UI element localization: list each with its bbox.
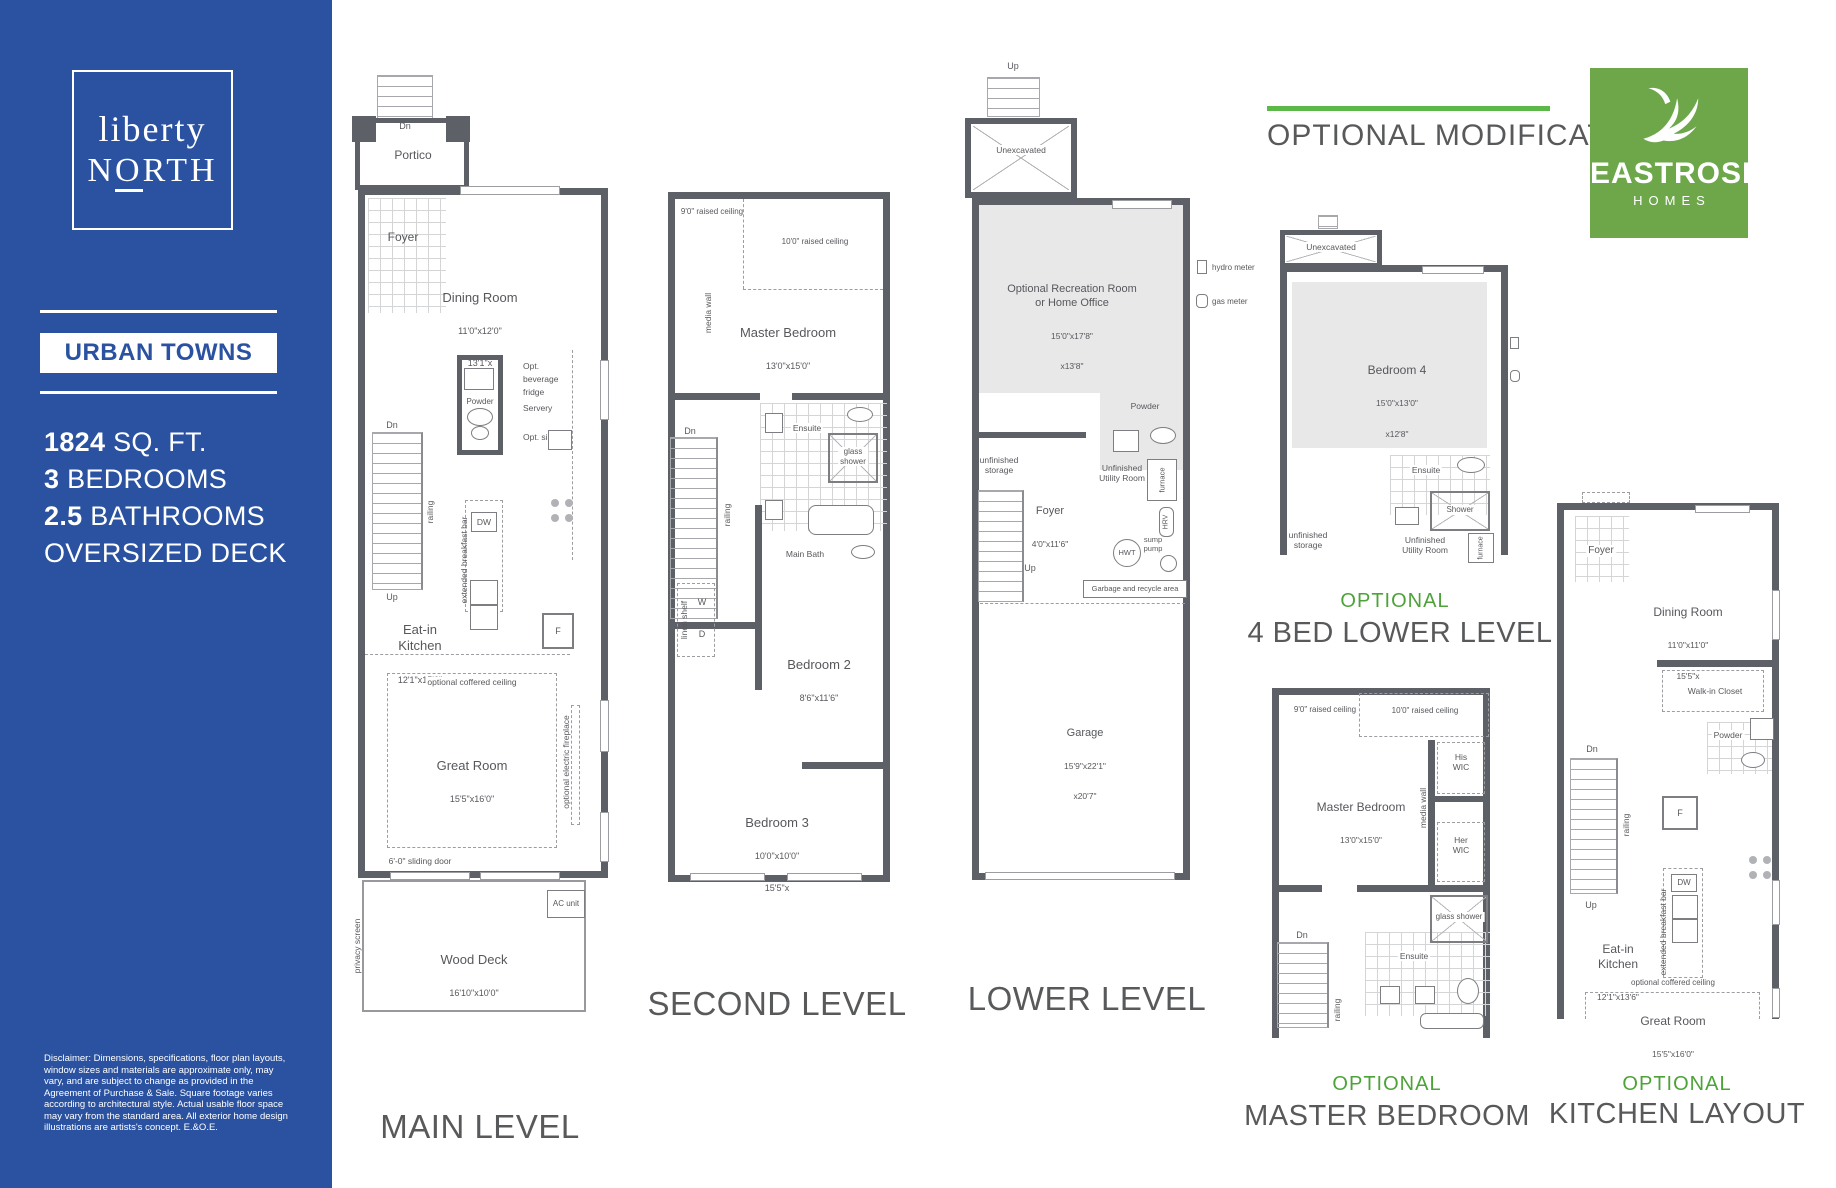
coffered-ceiling-label: optional coffered ceiling — [1629, 978, 1717, 988]
toilet — [1457, 978, 1479, 1004]
foyer-label: Foyer 4'0"x11'6" — [1032, 485, 1069, 569]
room-divider-dashed — [365, 654, 570, 655]
wood-deck-label: Wood Deck 16'10"x10'0" — [441, 932, 508, 1020]
fridge: F — [542, 613, 574, 649]
ceiling-dashed-line — [743, 289, 883, 290]
raised-ceiling-9-label: 9'0" raised ceiling — [681, 207, 743, 217]
room-name: Eat-in Kitchen — [1597, 942, 1639, 972]
linen-shelf-label: linen shelf — [680, 601, 689, 639]
unfinished-storage-label: unfinished storage — [980, 455, 1019, 475]
second-level-plan: 9'0" raised ceiling 10'0" raised ceiling… — [665, 185, 910, 1045]
island-sink — [470, 605, 498, 630]
coffered-ceiling-label: optional coffered ceiling — [425, 677, 518, 687]
spec-value: 3 — [44, 464, 59, 494]
toilet — [851, 545, 875, 559]
toilet — [1741, 752, 1765, 768]
main-bath-label: Main Bath — [784, 549, 826, 559]
room-name: Wood Deck — [441, 952, 508, 968]
window — [1772, 590, 1780, 640]
logo-word-liberty: liberty — [74, 108, 231, 150]
island-sink — [1672, 895, 1698, 919]
room-dim: 15'0"x17'8" — [1007, 331, 1137, 342]
garage-door — [985, 872, 1175, 880]
great-room-label: Great Room 15'5"x16'0" — [437, 738, 508, 826]
washer-label: W — [698, 597, 707, 608]
window — [480, 872, 560, 880]
window — [787, 873, 862, 881]
extended-breakfast-bar-label: extended breakfast bar — [460, 517, 469, 604]
rec-room-label: Optional Recreation Room or Home Office … — [1007, 263, 1137, 392]
up-label: Up — [1585, 900, 1597, 911]
ensuite-label: Ensuite — [1398, 951, 1430, 961]
wall — [1357, 885, 1490, 892]
sink — [1750, 718, 1774, 740]
room-dim: x12'8" — [1368, 429, 1427, 440]
media-wall — [1428, 740, 1435, 885]
dryer-label: D — [699, 629, 706, 640]
room-name: Bedroom 3 — [745, 815, 809, 831]
ceiling-dashed-line — [743, 199, 744, 289]
stairs — [1570, 758, 1618, 894]
toilet-tank — [471, 426, 489, 440]
window — [1772, 880, 1780, 925]
green-accent-line — [1267, 106, 1550, 111]
dishwasher: DW — [1671, 874, 1697, 892]
media-wall-label: media wall — [704, 293, 713, 333]
lower-level-plan: Up Unexcavated Optional Recreation Room … — [960, 55, 1270, 1030]
garbage-area: Garbage and recycle area — [1083, 580, 1187, 598]
logo-letter: N — [87, 152, 115, 189]
sidebar: liberty NORTH URBAN TOWNS 1824 SQ. FT. 3… — [0, 0, 332, 1188]
optional-kitchen-layout-plan: Foyer Dining Room 11'0"x11'0" 15'5"x Wal… — [1545, 490, 1810, 1150]
spec-deck: OVERSIZED DECK — [44, 535, 287, 572]
toilet — [847, 407, 873, 422]
window — [600, 812, 609, 862]
second-level-title: SECOND LEVEL — [647, 985, 906, 1023]
railing-label: railing — [1333, 999, 1342, 1022]
ac-unit: AC unit — [547, 890, 585, 918]
utility-room-label: Unfinished Utility Room — [1099, 463, 1145, 483]
main-level-plan: Dn Portico Foyer Dining Room 11'0"x12'0"… — [340, 60, 632, 1150]
spec-label: BATHROOMS — [82, 501, 265, 531]
room-name: Optional Recreation Room or Home Office — [1007, 283, 1137, 311]
room-dim: x13'8" — [1007, 361, 1137, 372]
window — [1772, 988, 1780, 1018]
bedroom-2-label: Bedroom 2 8'6"x11'6" — [787, 637, 851, 725]
master-bedroom-label: Master Bedroom 13'0"x15'0" — [1317, 780, 1406, 866]
powder-label: Powder — [1712, 730, 1745, 740]
toilet — [1150, 427, 1176, 444]
brochure-page: liberty NORTH URBAN TOWNS 1824 SQ. FT. 3… — [0, 0, 1836, 1188]
entry-steps — [1318, 215, 1338, 229]
hydro-meter-icon — [1197, 260, 1207, 274]
stairs — [372, 432, 423, 590]
bedroom-3-label: Bedroom 3 10'0"x10'0" 15'5"x — [745, 795, 809, 914]
bathtub — [1420, 1013, 1484, 1029]
master-bedroom-label: Master Bedroom 13'0"x15'0" — [740, 305, 836, 393]
sliding-door-label: 6'-0" sliding door — [389, 856, 452, 866]
room-dim: 8'6"x11'6" — [787, 693, 851, 704]
optional-master-bedroom-plan: 9'0" raised ceiling 10'0" raised ceiling… — [1265, 680, 1515, 1145]
window — [1695, 505, 1750, 513]
wall — [792, 393, 890, 400]
sink — [1415, 986, 1435, 1004]
optional-4-bed-lower-level-plan: Unexcavated Bedroom 4 15'0"x13'0" x12'8"… — [1275, 185, 1545, 655]
powder-label: Powder — [1131, 401, 1160, 411]
portico-label: Portico — [394, 148, 431, 162]
room-dim: 15'9"x22'1" — [1064, 761, 1106, 772]
eastrose-bird-icon — [1618, 78, 1719, 154]
up-label: Up — [1024, 563, 1036, 574]
eastrose-homes-logo: EASTROSE HOMES — [1590, 68, 1748, 238]
room-name: Garage — [1064, 727, 1106, 741]
great-room-label: Great Room 15'5"x16'0" — [1640, 994, 1705, 1080]
unexcavated-label: Unexcavated — [994, 145, 1048, 155]
room-dim: 11'0"x12'0" — [442, 326, 517, 337]
window — [600, 700, 609, 752]
room-name: Dining Room — [442, 290, 517, 306]
railing-label: railing — [723, 504, 732, 527]
foyer-label: Foyer — [1586, 545, 1616, 557]
sink — [765, 413, 783, 433]
fireplace-outline — [571, 705, 580, 825]
portico-pillar — [446, 116, 470, 142]
divider-line — [40, 310, 277, 313]
room-dim: 16'10"x10'0" — [441, 988, 508, 999]
unexcavated-x — [973, 126, 1069, 190]
window — [690, 873, 765, 881]
servery-label: Servery — [523, 403, 552, 413]
bathtub — [808, 505, 874, 535]
sink — [765, 500, 783, 520]
lower-level-title: LOWER LEVEL — [968, 980, 1206, 1018]
room-dim: 13'0"x15'0" — [1317, 835, 1406, 846]
raised-ceiling-10-label: 10'0" raised ceiling — [1392, 706, 1459, 716]
toilet — [1457, 457, 1485, 473]
spec-label: OVERSIZED DECK — [44, 538, 287, 568]
hwt-tank: HWT — [1113, 539, 1141, 567]
ensuite-label: Ensuite — [1410, 465, 1442, 475]
optional-plan-title: 4 BED LOWER LEVEL — [1247, 617, 1552, 650]
dn-label: Dn — [1586, 744, 1598, 755]
sink — [1113, 430, 1139, 452]
wall — [1430, 796, 1490, 802]
room-name: Master Bedroom — [1317, 800, 1406, 815]
spec-bedrooms: 3 BEDROOMS — [44, 461, 287, 498]
spec-label: BEDROOMS — [59, 464, 227, 494]
cooktop-burners — [1745, 852, 1773, 884]
room-name: Foyer — [1032, 505, 1069, 519]
wall — [755, 505, 762, 690]
disclaimer-text: Disclaimer: Dimensions, specifications, … — [44, 1053, 294, 1134]
optional-tag: OPTIONAL — [1340, 590, 1449, 613]
spec-bathrooms: 2.5 BATHROOMS — [44, 498, 287, 535]
walk-in-closet-label: Walk-in Closet — [1688, 686, 1742, 696]
main-level-title: MAIN LEVEL — [380, 1108, 579, 1146]
spec-value: 1824 — [44, 427, 105, 457]
wall — [978, 432, 1086, 438]
sump-pump-label: sump pump — [1144, 535, 1163, 553]
wall — [1272, 885, 1322, 892]
community-badge: URBAN TOWNS — [40, 333, 277, 373]
logo-word-north: NORTH — [74, 152, 231, 190]
island-sink — [1672, 919, 1698, 943]
hrv-label: HRV — [1163, 515, 1170, 530]
ensuite-label: Ensuite — [791, 423, 823, 433]
room-dim: 15'0"x13'0" — [1368, 398, 1427, 409]
room-dim: 10'0"x10'0" — [745, 851, 809, 862]
room-dim: 15'5"x16'0" — [1640, 1049, 1705, 1060]
foyer-label: Foyer — [388, 230, 419, 244]
sink — [464, 368, 494, 390]
wall — [802, 762, 888, 769]
glass-shower-label: glass shower — [838, 447, 868, 466]
sink — [1395, 507, 1419, 525]
up-label: Up — [1007, 61, 1019, 72]
gas-meter-icon — [1196, 294, 1208, 308]
room-dim: 13'0"x15'0" — [740, 361, 836, 372]
logo-letter-o-underlined: O — [115, 152, 143, 192]
railing-label: railing — [426, 501, 435, 524]
privacy-screen-label: privacy screen — [353, 919, 362, 974]
media-wall-label: media wall — [1419, 788, 1428, 828]
furnace-label: furnace — [1158, 467, 1166, 492]
optional-tag: OPTIONAL — [1622, 1073, 1731, 1096]
counter-dashed-line — [572, 350, 573, 560]
room-name: Eat-in Kitchen — [398, 622, 442, 655]
opt-sink — [548, 430, 572, 450]
room-dim: x20'7" — [1064, 791, 1106, 802]
spec-sqft: 1824 SQ. FT. — [44, 424, 287, 461]
unexcavated-label: Unexcavated — [1304, 242, 1358, 252]
spec-label: SQ. FT. — [105, 427, 206, 457]
bedroom-4-label: Bedroom 4 15'0"x13'0" x12'8" — [1368, 343, 1427, 459]
dn-label: Dn — [386, 420, 398, 431]
dishwasher: DW — [471, 512, 497, 532]
foyer-tile-floor — [368, 198, 446, 313]
window — [1422, 266, 1484, 274]
optional-tag: OPTIONAL — [1332, 1073, 1441, 1096]
cooktop-burners — [547, 495, 575, 527]
shower-label: Shower — [1444, 505, 1475, 515]
room-divider-dashed — [980, 603, 1185, 604]
stairs — [978, 490, 1024, 602]
spec-value: 2.5 — [44, 501, 82, 531]
room-dim: 15'5"x16'0" — [437, 794, 508, 805]
stoop-outline — [1582, 492, 1630, 503]
powder-label: Powder — [464, 397, 495, 407]
window — [1112, 200, 1172, 209]
extended-breakfast-bar-label: extended breakfast bar — [1659, 889, 1668, 976]
glass-shower-label: glass shower — [1434, 912, 1485, 922]
sump-pump — [1160, 555, 1177, 572]
gas-meter-icon — [1510, 370, 1520, 382]
dn-label: Dn — [1296, 930, 1308, 941]
room-dim: 15'5"x — [745, 883, 809, 894]
hydro-meter-icon — [1510, 337, 1519, 349]
unfinished-storage-label: unfinished storage — [1289, 530, 1328, 550]
logo-letters: RTH — [143, 152, 218, 189]
furnace-label: furnace — [1478, 536, 1485, 559]
raised-ceiling-10-label: 10'0" raised ceiling — [782, 237, 849, 247]
sliding-door — [390, 872, 470, 880]
wall — [1657, 660, 1775, 667]
wall — [668, 393, 760, 400]
window — [460, 186, 560, 195]
room-dim: 11'0"x11'0" — [1653, 640, 1722, 651]
fireplace-label: optional electric fireplace — [562, 715, 571, 809]
stairs — [1277, 942, 1329, 1028]
room-name: Great Room — [437, 758, 508, 774]
optional-plan-title: MASTER BEDROOM — [1244, 1100, 1530, 1133]
window — [600, 360, 609, 420]
garage-label: Garage 15'9"x22'1" x20'7" — [1064, 707, 1106, 822]
up-label: Up — [386, 592, 398, 603]
gas-meter-label: gas meter — [1212, 297, 1248, 307]
brand-name: EASTROSE — [1590, 159, 1748, 189]
room-dim: 4'0"x11'6" — [1032, 539, 1069, 550]
spec-list: 1824 SQ. FT. 3 BEDROOMS 2.5 BATHROOMS OV… — [44, 424, 287, 572]
entry-steps — [377, 75, 433, 122]
liberty-north-logo: liberty NORTH — [72, 70, 233, 230]
room-name: Bedroom 4 — [1368, 363, 1427, 378]
opt-beverage-fridge-label: Opt. beverage fridge — [523, 360, 558, 398]
toilet — [467, 408, 493, 426]
dn-label: Dn — [684, 426, 696, 437]
room-name: Dining Room — [1653, 605, 1722, 620]
her-wic-label: Her WIC — [1453, 835, 1470, 855]
brand-subtitle: HOMES — [1590, 193, 1748, 208]
room-name: Master Bedroom — [740, 325, 836, 341]
portico-pillar — [352, 116, 376, 142]
room-name: Great Room — [1640, 1014, 1705, 1029]
room-name: Bedroom 2 — [787, 657, 851, 673]
railing-label: railing — [1622, 814, 1631, 837]
his-wic-label: His WIC — [1453, 752, 1470, 772]
island-sink — [470, 580, 498, 605]
utility-room-label: Unfinished Utility Room — [1402, 535, 1448, 555]
raised-ceiling-9-label: 9'0" raised ceiling — [1294, 705, 1356, 715]
optional-plan-title: KITCHEN LAYOUT — [1549, 1098, 1805, 1131]
divider-line — [40, 391, 277, 394]
sink — [1380, 986, 1400, 1004]
hydro-meter-label: hydro meter — [1212, 263, 1255, 273]
fridge: F — [1662, 796, 1698, 830]
entry-steps — [987, 77, 1040, 117]
